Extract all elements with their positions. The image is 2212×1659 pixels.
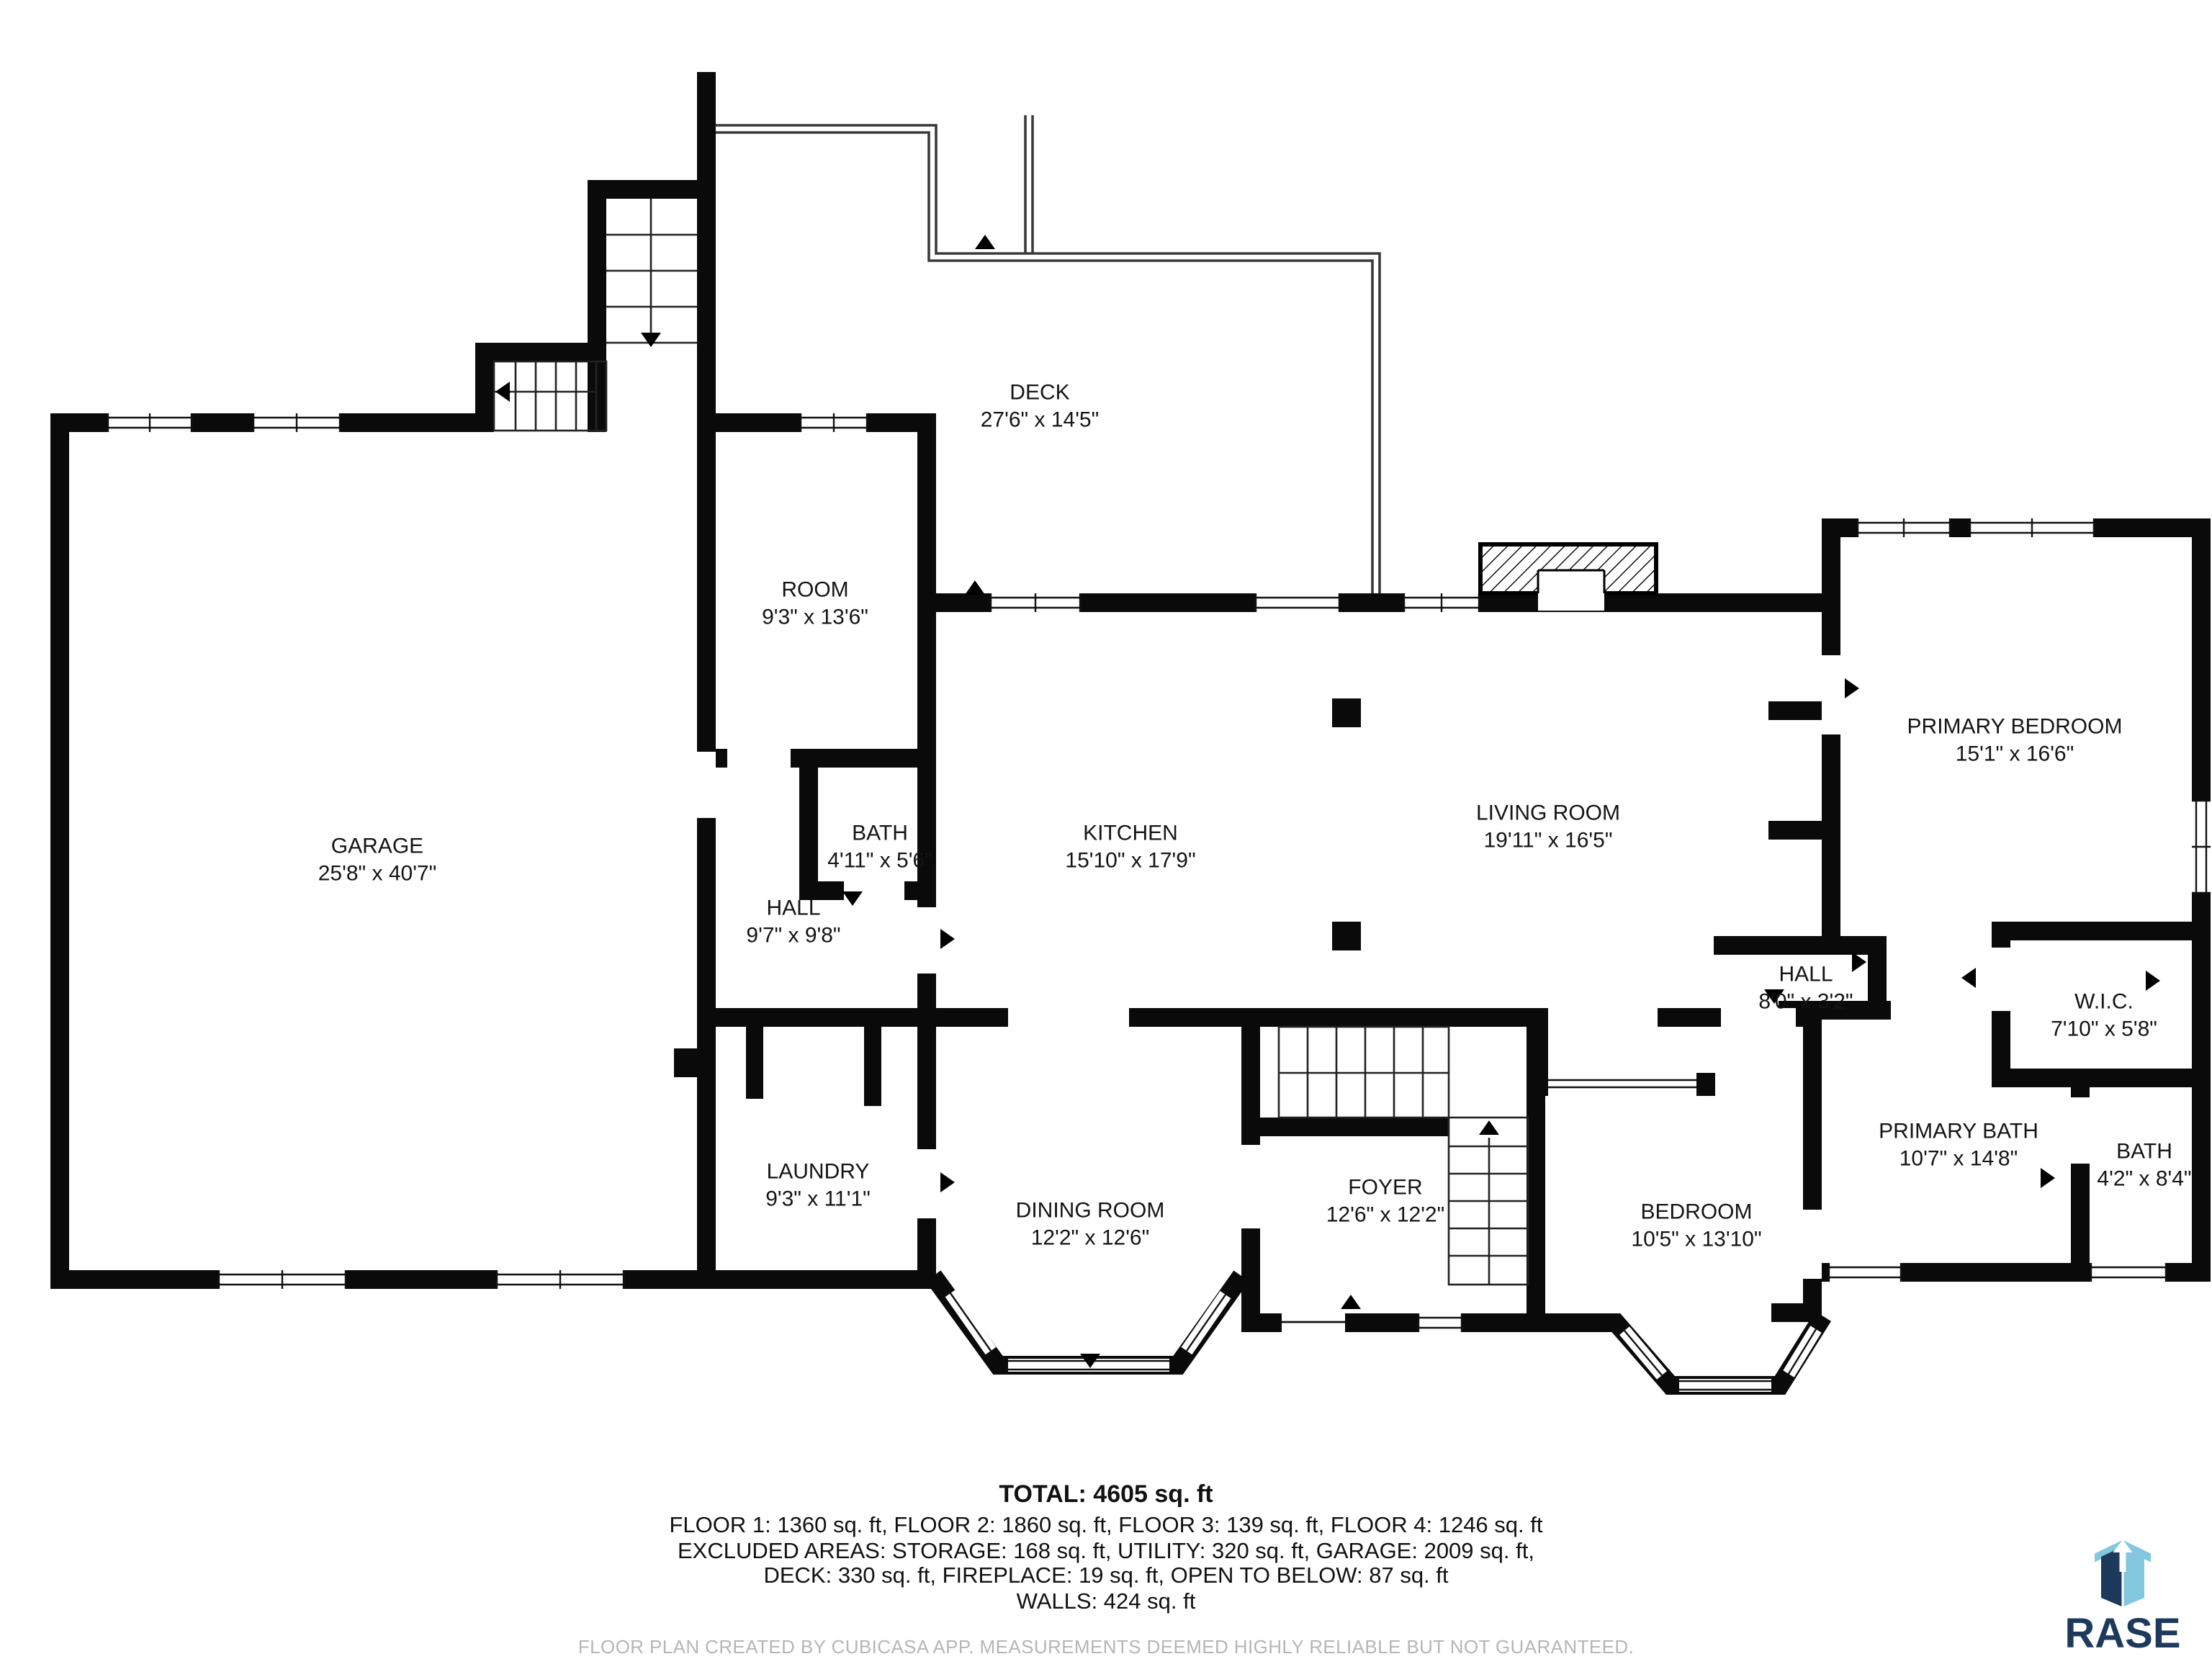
room-label-living-room: LIVING ROOM 19'11" x 16'5" [1476,801,1620,855]
room-dims: 4'11" x 5'6" [827,848,932,876]
room-label-primary-bedroom: PRIMARY BEDROOM 15'1" x 16'6" [1907,715,2123,769]
deck-railing [716,115,1380,612]
rase-cube-icon [2090,1539,2156,1609]
room-name: HALL [1758,963,1853,990]
room-dims: 15'1" x 16'6" [1907,742,2123,769]
room-dims: 8'0" x 3'2" [1758,989,1853,1017]
room-name: BATH [2097,1140,2191,1167]
bay-window-dining [933,1276,1241,1365]
room-dims: 7'10" x 5'8" [2051,1017,2157,1044]
room-name: FOYER [1326,1176,1445,1203]
stair-upper-icon [606,199,697,343]
room-dims: 15'10" x 17'9" [1065,848,1195,876]
stair-foyer-icon [1279,1027,1528,1285]
room-name: DECK [981,381,1100,408]
room-name: HALL [746,896,840,924]
room-dims: 9'3" x 11'1" [765,1187,871,1214]
room-label-kitchen: KITCHEN 15'10" x 17'9" [1065,822,1195,876]
closet-front-line [1548,1080,1696,1087]
room-name: GARAGE [318,835,437,862]
area-summary: TOTAL: 4605 sq. ft FLOOR 1: 1360 sq. ft,… [0,1480,2212,1614]
room-dims: 27'6" x 14'5" [981,408,1100,435]
rase-logo-text: RASE [2045,1614,2200,1656]
room-label-hall-right: HALL 8'0" x 3'2" [1758,963,1853,1017]
room-name: PRIMARY BEDROOM [1907,715,2123,742]
room-name: ROOM [762,578,868,606]
room-name: LAUNDRY [765,1160,871,1187]
deck-area-text: DECK: 330 sq. ft, FIREPLACE: 19 sq. ft, … [0,1564,2212,1589]
room-label-bath-small: BATH 4'11" x 5'6" [827,822,932,876]
room-name: PRIMARY BATH [1879,1120,2038,1147]
room-dims: 19'11" x 16'5" [1476,828,1620,855]
room-label-room: ROOM 9'3" x 13'6" [762,578,868,632]
room-name: BATH [827,822,932,849]
room-dims: 12'6" x 12'2" [1326,1202,1445,1230]
walls-area-text: WALLS: 424 sq. ft [0,1589,2212,1614]
room-label-bath-right: BATH 4'2" x 8'4" [2097,1140,2191,1194]
room-dims: 10'7" x 14'8" [1879,1146,2038,1174]
floors-area-text: FLOOR 1: 1360 sq. ft, FLOOR 2: 1860 sq. … [0,1514,2212,1539]
room-name: BEDROOM [1631,1200,1761,1228]
floor-plan-page: GARAGE 25'8" x 40'7" DECK 27'6" x 14'5" … [0,0,2212,1659]
room-name: LIVING ROOM [1476,801,1620,829]
room-label-bedroom: BEDROOM 10'5" x 13'10" [1631,1200,1761,1254]
room-label-deck: DECK 27'6" x 14'5" [981,381,1100,435]
rase-logo: RASE [2045,1539,2200,1656]
total-area-text: TOTAL: 4605 sq. ft [0,1480,2212,1509]
room-dims: 10'5" x 13'10" [1631,1227,1761,1254]
room-name: DINING ROOM [1016,1199,1165,1226]
room-label-wic: W.I.C. 7'10" x 5'8" [2051,990,2157,1044]
room-label-dining-room: DINING ROOM 12'2" x 12'6" [1016,1199,1165,1253]
room-name: W.I.C. [2051,990,2157,1017]
room-label-laundry: LAUNDRY 9'3" x 11'1" [765,1160,871,1214]
room-dims: 12'2" x 12'6" [1016,1226,1165,1253]
bay-window-glass [950,1293,1816,1390]
room-dims: 9'7" x 9'8" [746,923,840,950]
room-dims: 25'8" x 40'7" [318,861,437,889]
disclaimer-text: FLOOR PLAN CREATED BY CUBICASA APP. MEAS… [0,1636,2212,1658]
room-dims: 4'2" x 8'4" [2097,1166,2191,1194]
room-label-foyer: FOYER 12'6" x 12'2" [1326,1176,1445,1230]
room-label-primary-bath: PRIMARY BATH 10'7" x 14'8" [1879,1120,2038,1174]
room-dims: 9'3" x 13'6" [762,605,868,632]
room-label-garage: GARAGE 25'8" x 40'7" [318,835,437,889]
room-name: KITCHEN [1065,822,1195,849]
excluded-area-text: EXCLUDED AREAS: STORAGE: 168 sq. ft, UTI… [0,1539,2212,1564]
room-label-hall-left: HALL 9'7" x 9'8" [746,896,840,950]
